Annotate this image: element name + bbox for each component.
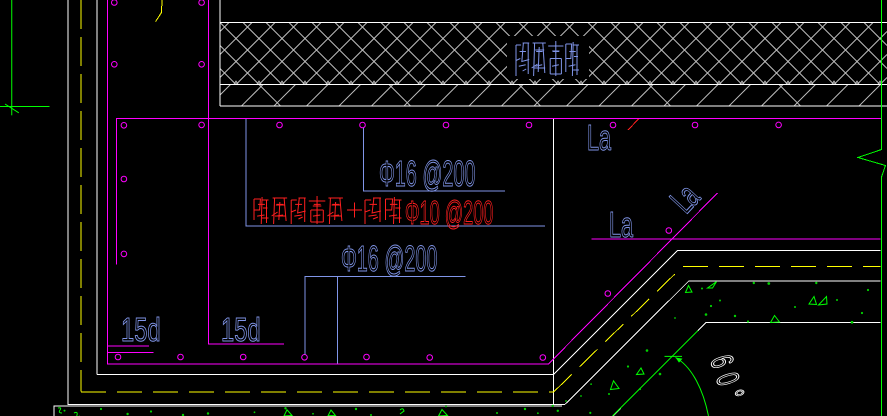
svg-text:La: La [587,118,611,158]
svg-text:15d: 15d [221,312,261,349]
svg-text:Φ10 @200: Φ10 @200 [405,194,493,231]
svg-text:Φ16 @200: Φ16 @200 [379,155,475,195]
svg-text:La: La [609,205,633,245]
svg-text:Φ16 @200: Φ16 @200 [341,240,437,280]
svg-text:15d: 15d [121,312,161,349]
